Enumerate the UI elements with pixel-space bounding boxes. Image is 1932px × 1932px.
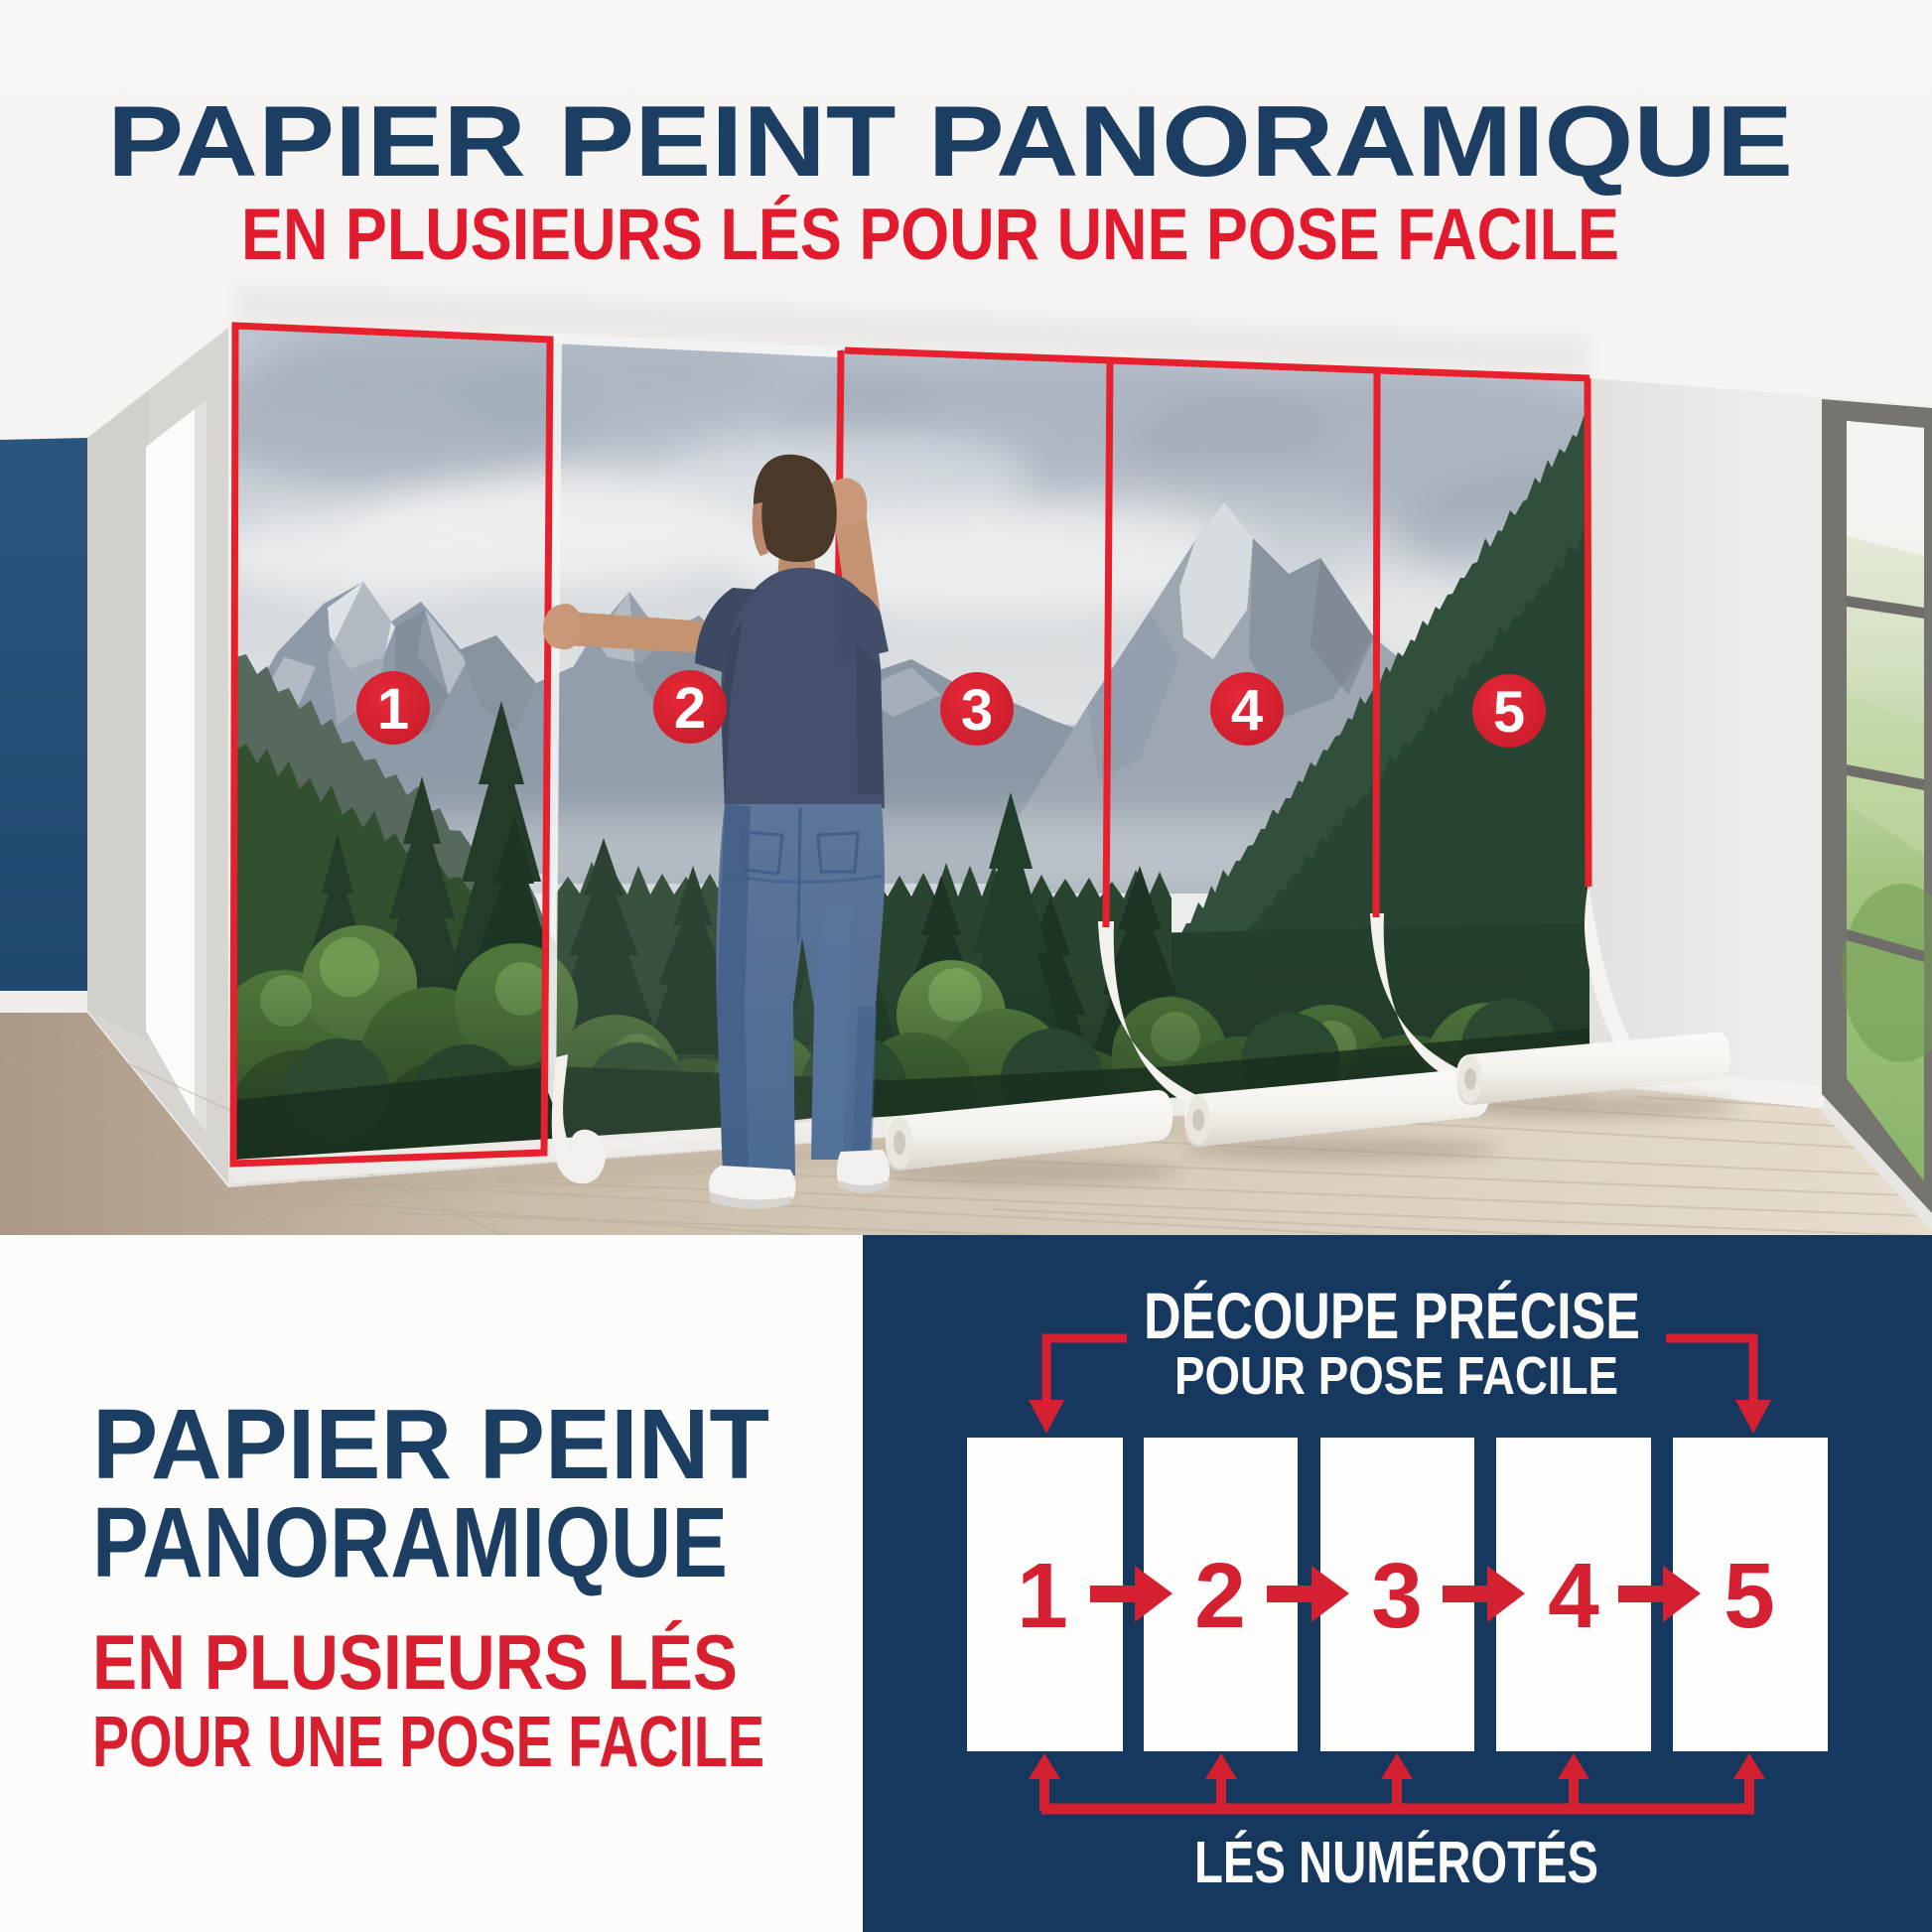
svg-text:4: 4 — [1548, 1544, 1599, 1647]
svg-text:EN PLUSIEURS LÉS POUR UNE POSE: EN PLUSIEURS LÉS POUR UNE POSE FACILE — [241, 195, 1619, 275]
svg-text:2: 2 — [674, 676, 706, 741]
svg-text:1: 1 — [377, 677, 409, 742]
svg-text:EN PLUSIEURS LÉS: EN PLUSIEURS LÉS — [92, 1618, 738, 1706]
svg-text:3: 3 — [961, 678, 993, 743]
svg-text:PAPIER PEINT: PAPIER PEINT — [92, 1389, 769, 1500]
svg-text:1: 1 — [1017, 1544, 1068, 1647]
svg-text:PANORAMIQUE: PANORAMIQUE — [92, 1487, 728, 1598]
svg-text:POUR POSE FACILE: POUR POSE FACILE — [1174, 1346, 1618, 1406]
svg-text:2: 2 — [1194, 1544, 1246, 1647]
svg-text:POUR UNE POSE FACILE: POUR UNE POSE FACILE — [92, 1703, 764, 1782]
svg-text:3: 3 — [1371, 1544, 1423, 1647]
svg-text:LÉS NUMÉROTÉS: LÉS NUMÉROTÉS — [1194, 1830, 1598, 1895]
svg-text:DÉCOUPE PRÉCISE: DÉCOUPE PRÉCISE — [1144, 1279, 1640, 1352]
svg-text:4: 4 — [1231, 678, 1263, 743]
svg-text:5: 5 — [1493, 680, 1525, 745]
svg-text:5: 5 — [1724, 1544, 1775, 1647]
svg-text:PAPIER PEINT PANORAMIQUE: PAPIER PEINT PANORAMIQUE — [107, 86, 1793, 198]
